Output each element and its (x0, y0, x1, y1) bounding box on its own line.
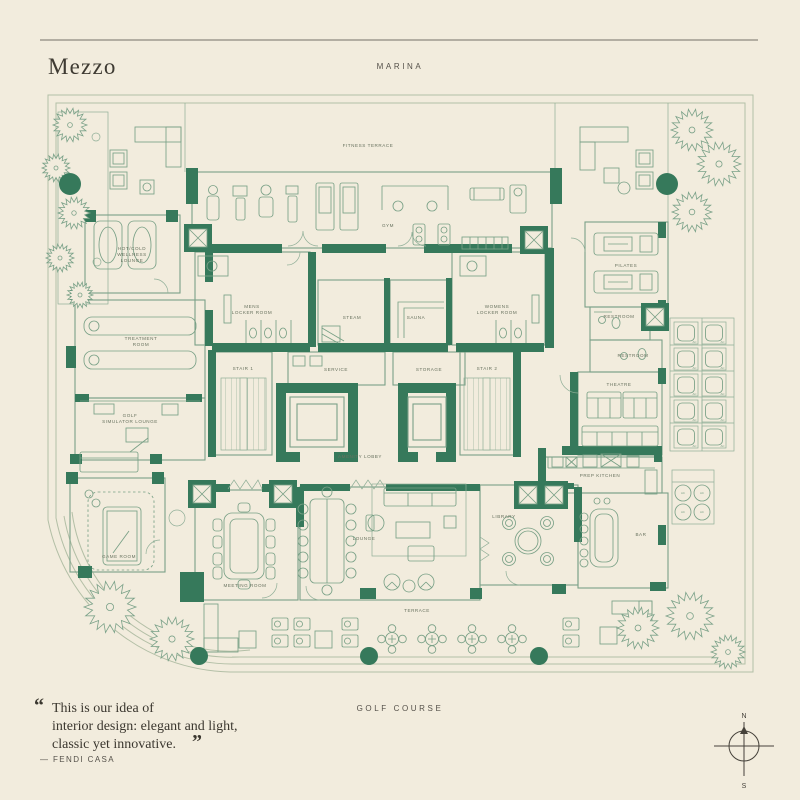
svg-text:AC: AC (720, 340, 724, 344)
room-label: THEATRE (607, 382, 632, 387)
room-label: AMENITY LOBBY (338, 454, 382, 459)
ac-unit-icon: AC (694, 485, 710, 501)
room-label: RESTROOM (604, 314, 635, 319)
header: Mezzo MARINA (40, 40, 758, 79)
svg-text:AC: AC (700, 510, 704, 514)
room-label: SERVICE (324, 367, 348, 372)
svg-text:AC: AC (720, 392, 724, 396)
service-elevator-icon (514, 481, 542, 509)
tree-icon (671, 109, 713, 150)
compass-needle-icon (740, 726, 748, 734)
ac-unit-icon: AC (675, 485, 691, 501)
svg-text:AC: AC (692, 392, 696, 396)
compass: N S (714, 713, 774, 790)
service-elevator-icon (269, 480, 297, 508)
ac-unit-icon: AC (674, 322, 698, 344)
room-label: TREATMENTROOM (125, 336, 158, 347)
svg-text:AC: AC (692, 366, 696, 370)
svg-text:AC: AC (692, 340, 696, 344)
ac-unit-icon: AC (702, 348, 726, 370)
ac-unit-icon: AC (694, 504, 710, 520)
marina-label: MARINA (377, 62, 424, 71)
brochure-page: ACACACACACACACACACACACACACAC FITNESS TER… (0, 0, 800, 800)
svg-text:AC: AC (720, 418, 724, 422)
tree-icon (666, 592, 714, 639)
ac-unit-icon: AC (702, 322, 726, 344)
planter-icon (360, 647, 378, 665)
room-label: STAIR 2 (477, 366, 498, 371)
room-label: GAME ROOM (102, 554, 136, 559)
tree-icon (672, 192, 712, 231)
quote-line-3: classic yet innovative. (52, 737, 176, 752)
quote-line-2: interior design: elegant and light, (52, 719, 237, 734)
planter-icon (656, 173, 678, 195)
stairs (221, 378, 510, 450)
planter-icon (59, 173, 81, 195)
room-label: TERRACE (404, 608, 430, 613)
floor-plan-figure: ACACACACACACACACACACACACACAC FITNESS TER… (0, 0, 800, 800)
tree-icon (150, 617, 194, 660)
ac-unit-icon: AC (702, 374, 726, 396)
room-label: PREP KITCHEN (580, 473, 620, 478)
footer: “ This is our idea of interior design: e… (34, 695, 774, 790)
planter-icon (530, 647, 548, 665)
room-label: HOT/COLDWELLNESSLOUNGE (117, 246, 146, 263)
page-title: Mezzo (48, 54, 117, 79)
svg-text:AC: AC (681, 510, 685, 514)
room-label: STORAGE (416, 367, 442, 372)
service-elevator-icon (188, 480, 216, 508)
quote-close-mark: ” (192, 731, 202, 753)
quote-attribution: — FENDI CASA (40, 755, 115, 764)
svg-text:AC: AC (692, 444, 696, 448)
ac-unit-icon: AC (674, 374, 698, 396)
room-label: BAR (635, 532, 646, 537)
compass-north-label: N (741, 713, 746, 720)
room-label: LIBRARY (492, 514, 515, 519)
room-label: GYM (382, 223, 394, 228)
room-labels-layer: FITNESS TERRACEGYMHOT/COLDWELLNESSLOUNGE… (102, 143, 649, 613)
room-label: GOLFSIMULATOR LOUNGE (102, 413, 158, 424)
room-label: STEAM (343, 315, 362, 320)
svg-text:AC: AC (692, 418, 696, 422)
ac-unit-icon: AC (702, 400, 726, 422)
svg-text:AC: AC (720, 366, 724, 370)
service-elevator-icon (184, 224, 212, 252)
room-label: SAUNA (407, 315, 426, 320)
room-label: STAIR 1 (233, 366, 254, 371)
room-label: MENSLOCKER ROOM (232, 304, 273, 315)
tree-icon (46, 244, 74, 272)
room-label: PILATES (615, 263, 637, 268)
room-label: MEETING ROOM (223, 583, 266, 588)
tree-icon (697, 142, 741, 185)
service-elevator-icon (540, 481, 568, 509)
ac-units-layer: ACACACACACACACACACACACACACAC (674, 322, 726, 520)
service-elevator-icon (641, 303, 669, 331)
room-label: RESTROOM (618, 353, 649, 358)
service-elevator-icon (520, 226, 548, 254)
room-label: FITNESS TERRACE (343, 143, 394, 148)
planter-icon (190, 647, 208, 665)
room-label: WOMENSLOCKER ROOM (477, 304, 518, 315)
room-label: LOUNGE (353, 536, 376, 541)
compass-south-label: S (742, 783, 747, 790)
ac-unit-icon: AC (674, 348, 698, 370)
svg-text:AC: AC (681, 491, 685, 495)
ac-unit-icon: AC (674, 426, 698, 448)
trees-layer (42, 108, 745, 668)
ac-unit-icon: AC (675, 504, 691, 520)
quote-line-1: This is our idea of (52, 701, 154, 716)
svg-text:AC: AC (720, 444, 724, 448)
tree-icon (84, 581, 136, 632)
svg-text:AC: AC (700, 491, 704, 495)
golf-course-label: GOLF COURSE (357, 704, 444, 713)
tree-icon (617, 607, 659, 648)
ac-unit-icon: AC (674, 400, 698, 422)
quote-open-mark: “ (34, 695, 44, 717)
ac-unit-icon: AC (702, 426, 726, 448)
